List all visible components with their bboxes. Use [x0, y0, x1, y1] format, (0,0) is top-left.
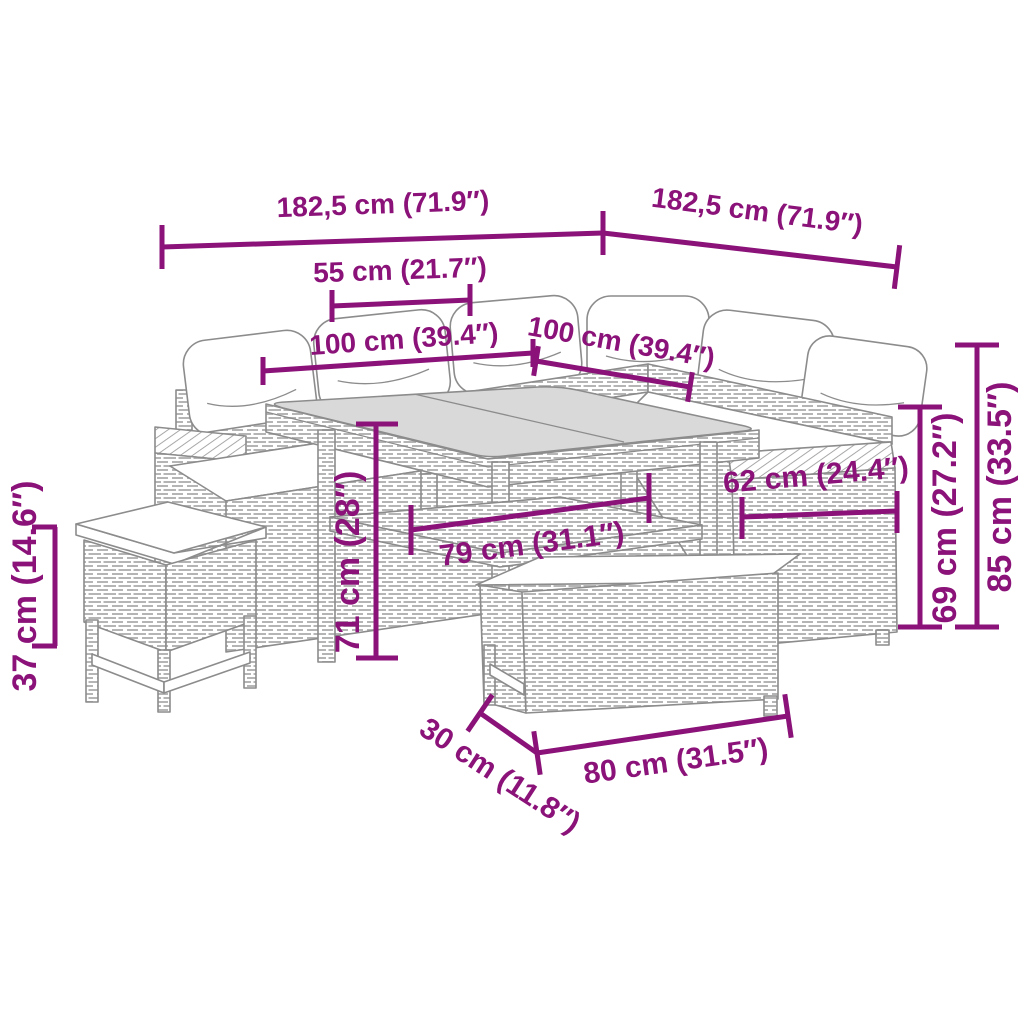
dim-seat-back-height: 69 cm (27.2″)	[898, 407, 964, 627]
bench-body-front	[522, 573, 778, 713]
dim-label-total-width-right: 182,5 cm (71.9″)	[650, 182, 865, 240]
dim-label-total-width-left: 182,5 cm (71.9″)	[276, 185, 490, 223]
sofa-foot	[876, 630, 889, 645]
stool	[76, 502, 266, 712]
dim-label-stool-height: 37 cm (14.6″)	[6, 481, 44, 692]
dim-label-total-height: 85 cm (33.5″)	[981, 382, 1019, 593]
dim-label-tabletop-half: 55 cm (21.7″)	[313, 251, 488, 288]
dim-label-table-height: 71 cm (28″)	[329, 471, 367, 654]
dim-stool-height: 37 cm (14.6″)	[6, 481, 57, 692]
dim-total-height: 85 cm (33.5″)	[955, 345, 1019, 627]
bench	[476, 554, 800, 716]
bench-leg	[764, 696, 777, 716]
stool-stretcher	[92, 654, 164, 693]
dim-total-width-right: 182,5 cm (71.9″)	[603, 182, 900, 289]
dim-label-seat-back-height: 69 cm (27.2″)	[926, 413, 964, 624]
dim-bench-depth: 30 cm (11.8″)	[414, 695, 587, 840]
dim-label-bench-depth: 30 cm (11.8″)	[414, 712, 587, 840]
stool-stretcher	[164, 652, 250, 693]
furniture-dimension-diagram: 182,5 cm (71.9″) 182,5 cm (71.9″) 55 cm …	[0, 0, 1024, 1024]
diagram-canvas: 182,5 cm (71.9″) 182,5 cm (71.9″) 55 cm …	[0, 0, 1024, 1024]
